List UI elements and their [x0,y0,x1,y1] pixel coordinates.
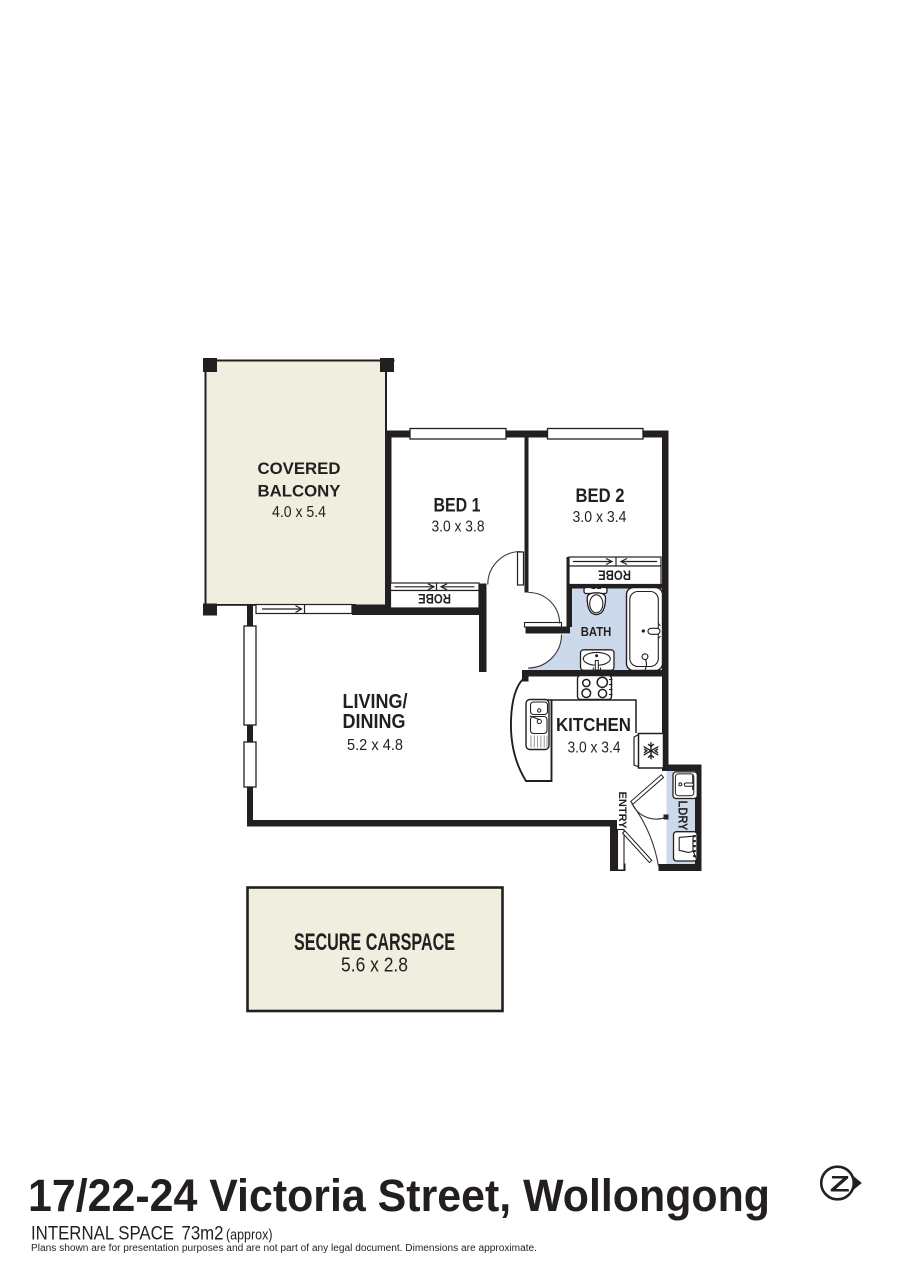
svg-text:(approx): (approx) [226,1227,273,1244]
svg-text:17/22-24 Victoria Street, Woll: 17/22-24 Victoria Street, Wollongong [28,1170,770,1221]
svg-text:LDRY: LDRY [676,801,691,831]
svg-text:BED 2: BED 2 [576,486,625,507]
svg-text:SECURE CARSPACE: SECURE CARSPACE [294,929,455,956]
svg-text:ROBE: ROBE [418,591,451,606]
svg-text:INTERNAL SPACE: INTERNAL SPACE [31,1223,174,1245]
svg-text:4.0 x 5.4: 4.0 x 5.4 [272,504,326,521]
svg-text:73m2: 73m2 [182,1223,224,1245]
svg-text:BATH: BATH [581,625,612,639]
svg-text:3.0 x 3.4: 3.0 x 3.4 [568,740,621,757]
svg-text:Plans shown are for presentati: Plans shown are for presentation purpose… [31,1243,537,1254]
svg-text:3.0 x 3.4: 3.0 x 3.4 [573,509,627,526]
svg-text:COVERED: COVERED [258,459,341,478]
svg-text:BALCONY: BALCONY [258,482,342,501]
svg-text:3.0 x 3.8: 3.0 x 3.8 [432,519,485,536]
svg-text:ENTRY: ENTRY [616,792,628,830]
svg-text:5.6 x 2.8: 5.6 x 2.8 [341,955,408,977]
svg-text:LIVING/: LIVING/ [343,691,408,713]
svg-text:BED 1: BED 1 [434,496,481,517]
svg-text:ROBE: ROBE [598,568,631,583]
svg-text:KITCHEN: KITCHEN [556,715,631,735]
svg-text:5.2 x 4.8: 5.2 x 4.8 [347,737,403,754]
svg-text:DINING: DINING [343,711,406,733]
svg-text:Z: Z [830,1171,850,1196]
